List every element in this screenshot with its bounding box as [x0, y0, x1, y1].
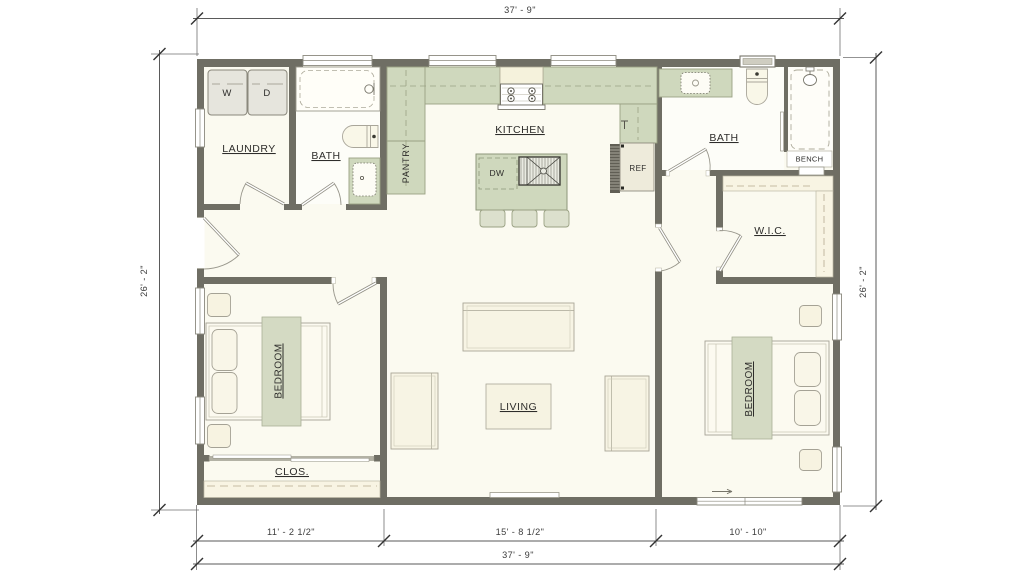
svg-text:BENCH: BENCH: [796, 155, 824, 164]
svg-text:D: D: [263, 88, 270, 99]
svg-text:DW: DW: [490, 168, 505, 178]
svg-text:LIVING: LIVING: [500, 401, 537, 413]
svg-text:REF: REF: [629, 164, 646, 173]
svg-text:KITCHEN: KITCHEN: [495, 124, 545, 136]
svg-text:37' - 9": 37' - 9": [504, 5, 536, 15]
svg-text:26' - 2": 26' - 2": [858, 266, 868, 298]
svg-text:15' - 8 1/2": 15' - 8 1/2": [496, 527, 545, 537]
svg-text:W: W: [222, 88, 231, 99]
svg-text:CLOS.: CLOS.: [275, 466, 309, 478]
svg-text:W.I.C.: W.I.C.: [754, 225, 786, 237]
svg-text:LAUNDRY: LAUNDRY: [222, 143, 276, 155]
svg-text:26' - 2": 26' - 2": [139, 265, 149, 297]
svg-text:10' - 10": 10' - 10": [729, 527, 766, 537]
svg-text:PANTRY: PANTRY: [401, 143, 411, 183]
svg-text:BEDROOM: BEDROOM: [274, 343, 285, 398]
svg-text:BEDROOM: BEDROOM: [744, 361, 755, 416]
svg-text:BATH: BATH: [709, 132, 738, 144]
svg-text:11' - 2 1/2": 11' - 2 1/2": [267, 527, 315, 537]
svg-text:BATH: BATH: [311, 150, 340, 162]
svg-text:37' - 9": 37' - 9": [502, 550, 534, 560]
